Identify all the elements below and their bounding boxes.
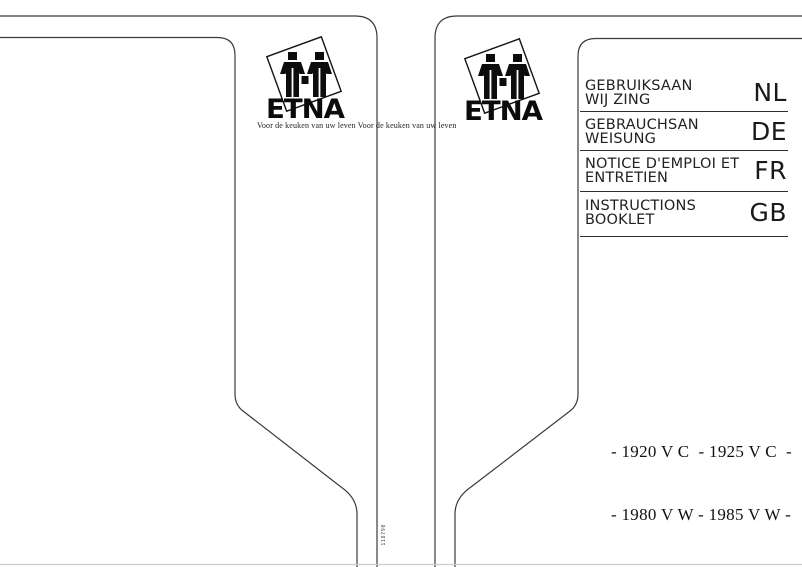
logo-figure-icon [280, 52, 305, 97]
lang-title-line: NOTICE D'EMPLOI ET [585, 157, 739, 171]
logo-center-block [302, 76, 309, 84]
lang-title-fr: NOTICE D'EMPLOI ET ENTRETIEN [585, 157, 739, 185]
etna-logo-left: ETNA [261, 37, 351, 122]
table-separator [580, 191, 788, 192]
lang-title-line: GEBRAUCHSAN [585, 118, 699, 132]
lang-row-gb: INSTRUCTIONS BOOKLET GB [585, 200, 787, 226]
lang-code-fr: FR [754, 158, 787, 184]
lang-title-gb: INSTRUCTIONS BOOKLET [585, 199, 749, 227]
model-numbers-line: - 1920 V C - 1925 V C - [611, 441, 792, 462]
table-separator [580, 236, 788, 237]
table-separator [580, 150, 788, 151]
lang-row-de: GEBRAUCHSAN WEISUNG DE [585, 115, 787, 149]
lang-title-line: WEISUNG [585, 132, 699, 146]
logo-figure-icon [307, 52, 332, 97]
logo-wordmark: ETNA [464, 96, 543, 127]
booklet-cover-scan: ETNA ETNA Voor de keuken van uw leven Vo… [0, 0, 802, 567]
lang-title-line: ENTRETIEN [585, 171, 739, 185]
etna-logo-right: ETNA [459, 39, 549, 124]
print-code: 118790 [381, 524, 387, 546]
brand-tagline: Voor de keuken van uw leven Voor de keuk… [257, 121, 457, 130]
lang-title-nl: GEBRUIKSAAN WIJ ZING [585, 79, 693, 107]
lang-row-nl: GEBRUIKSAAN WIJ ZING NL [585, 76, 787, 110]
lang-title-line: GEBRUIKSAAN [585, 79, 693, 93]
lang-title-de: GEBRAUCHSAN WEISUNG [585, 118, 699, 146]
lang-code-gb: GB [749, 200, 787, 226]
logo-center-block [500, 78, 507, 86]
model-numbers-list: - 1920 V C - 1925 V C - - 1980 V W - 198… [611, 399, 792, 567]
lang-code-nl: NL [753, 80, 787, 106]
lang-row-fr: NOTICE D'EMPLOI ET ENTRETIEN FR [585, 154, 787, 188]
logo-figure-icon [478, 54, 503, 99]
model-numbers-line: - 1980 V W - 1985 V W - [611, 504, 792, 525]
lang-code-de: DE [751, 119, 787, 145]
lang-title-line: WIJ ZING [585, 93, 693, 107]
table-separator [580, 111, 788, 112]
lang-title-line: INSTRUCTIONS BOOKLET [585, 199, 749, 227]
logo-figure-icon [505, 54, 530, 99]
